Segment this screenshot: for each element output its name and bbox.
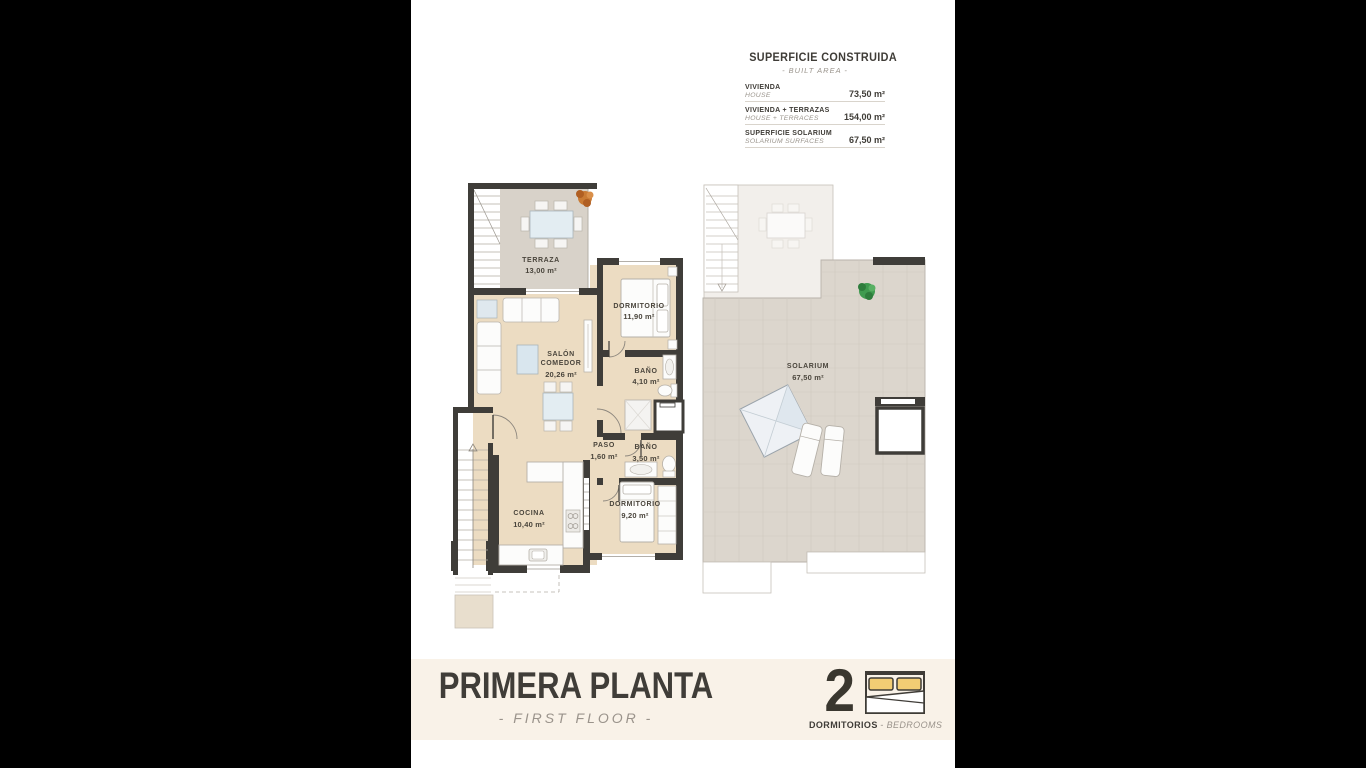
label-dormitorio2: DORMITORIO xyxy=(609,501,660,508)
area-cocina: 10,40 m² xyxy=(513,520,545,529)
area-dormitorio1: 11,90 m² xyxy=(623,312,655,321)
side-table xyxy=(477,300,497,318)
solarium-top-wall xyxy=(873,257,925,265)
label-bano2: BAÑO xyxy=(634,442,657,451)
area-terraza: 13,00 m² xyxy=(525,266,557,275)
area-bano1: 4,10 m² xyxy=(632,377,660,386)
floor-subtitle: - FIRST FLOOR - xyxy=(411,710,741,726)
area-dormitorio2: 9,20 m² xyxy=(621,511,649,520)
label-solarium: SOLARIUM xyxy=(787,363,829,370)
coffee-table xyxy=(517,345,538,374)
label-cocina: COCINA xyxy=(513,510,544,517)
stove xyxy=(566,510,580,532)
porch xyxy=(455,595,493,628)
solarium-step-right xyxy=(807,552,925,573)
floor-title: PRIMERA PLANTA xyxy=(437,667,714,704)
label-salon-1: SALÓN xyxy=(547,349,575,358)
area-paso: 1,60 m² xyxy=(590,452,618,461)
brochure-page: SUPERFICIE CONSTRUIDA - BUILT AREA - VIV… xyxy=(411,0,955,768)
label-paso: PASO xyxy=(593,442,615,449)
bedrooms-label-en: - BEDROOMS xyxy=(880,720,942,730)
label-terraza: TERRAZA xyxy=(522,257,560,264)
house-plan: TERRAZA 13,00 m² DORMITORIO 11,90 m² SAL… xyxy=(451,183,683,628)
chimney-box xyxy=(875,397,925,453)
label-dormitorio1: DORMITORIO xyxy=(613,303,664,310)
solarium-step-left xyxy=(703,562,771,593)
bedrooms-block: 2 DORMITORIOS - BEDROOMS xyxy=(809,665,941,730)
floor-title-block: PRIMERA PLANTA - FIRST FLOOR - xyxy=(411,667,741,726)
bedrooms-count: 2 xyxy=(825,665,856,716)
closet xyxy=(658,486,676,544)
area-bano2: 3,50 m² xyxy=(632,454,660,463)
solarium-plan: SOLARIUM 67,50 m² xyxy=(701,185,927,593)
tv-unit xyxy=(584,320,592,372)
footer-band: PRIMERA PLANTA - FIRST FLOOR - 2 DORMITO… xyxy=(411,659,955,740)
label-salon-2: COMEDOR xyxy=(541,360,582,367)
roof-dashed-outline xyxy=(495,575,559,592)
bed-icon xyxy=(863,671,927,717)
label-bano1: BAÑO xyxy=(634,366,657,375)
upper-stairs xyxy=(474,190,500,284)
area-salon: 20,26 m² xyxy=(545,370,577,379)
floor-plan: TERRAZA 13,00 m² DORMITORIO 11,90 m² SAL… xyxy=(411,0,955,768)
area-solarium: 67,50 m² xyxy=(792,373,824,382)
